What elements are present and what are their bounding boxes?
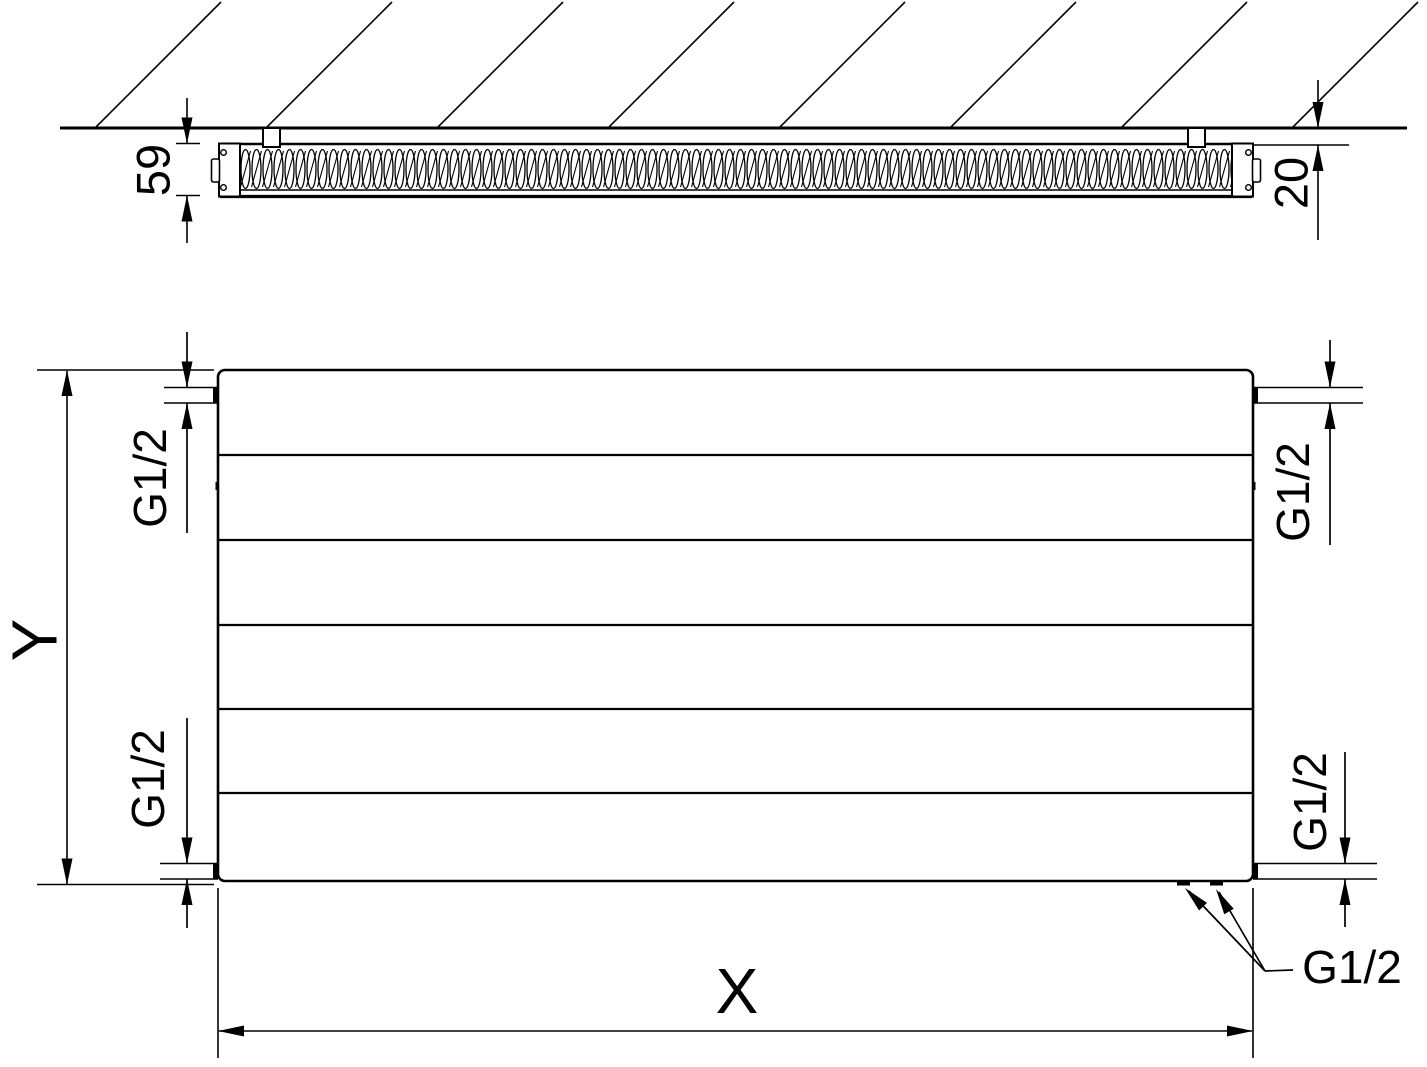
top-view-cross-section: 59 20 — [60, 2, 1418, 243]
width-axis-label: X — [716, 955, 759, 1027]
left-seam-mark — [216, 482, 219, 490]
thread-top-right-label: G1/2 — [1267, 442, 1319, 542]
wall-bracket-right — [1188, 128, 1205, 147]
dimension-thread-bottom-left — [182, 718, 193, 928]
thread-bottom-right-label: G1/2 — [1284, 752, 1336, 852]
right-seam-mark — [1253, 482, 1256, 490]
dimension-thread-top-right — [1325, 340, 1336, 545]
radiator-technical-drawing: 59 20 — [0, 0, 1427, 1067]
left-plug-icon — [212, 159, 220, 182]
right-plug-icon — [1253, 159, 1261, 182]
bottom-connections — [1177, 880, 1293, 971]
dimension-depth — [176, 98, 200, 243]
wall-clearance-label: 20 — [1264, 157, 1317, 209]
leader-arrow-2 — [1211, 886, 1234, 914]
dimension-thread-top-left — [182, 332, 193, 533]
dimension-thread-bottom-right — [1340, 752, 1351, 927]
wall-hatching — [95, 2, 1418, 128]
convector-fins — [240, 147, 1232, 191]
height-axis-label: Y — [0, 619, 70, 662]
wall-bracket-left — [263, 128, 280, 147]
front-view: G1/2 G1/2 G1/2 G1/2 — [0, 332, 1402, 1058]
depth-label: 59 — [126, 144, 179, 196]
right-end-cap — [1232, 144, 1261, 197]
drawing-canvas: 59 20 — [0, 0, 1427, 1067]
leader-arrow-1 — [1181, 884, 1207, 910]
thread-bottom-callout-label: G1/2 — [1302, 941, 1402, 993]
thread-bottom-left-label: G1/2 — [122, 729, 174, 829]
thread-top-left-label: G1/2 — [124, 428, 176, 528]
left-end-cap — [212, 144, 241, 197]
